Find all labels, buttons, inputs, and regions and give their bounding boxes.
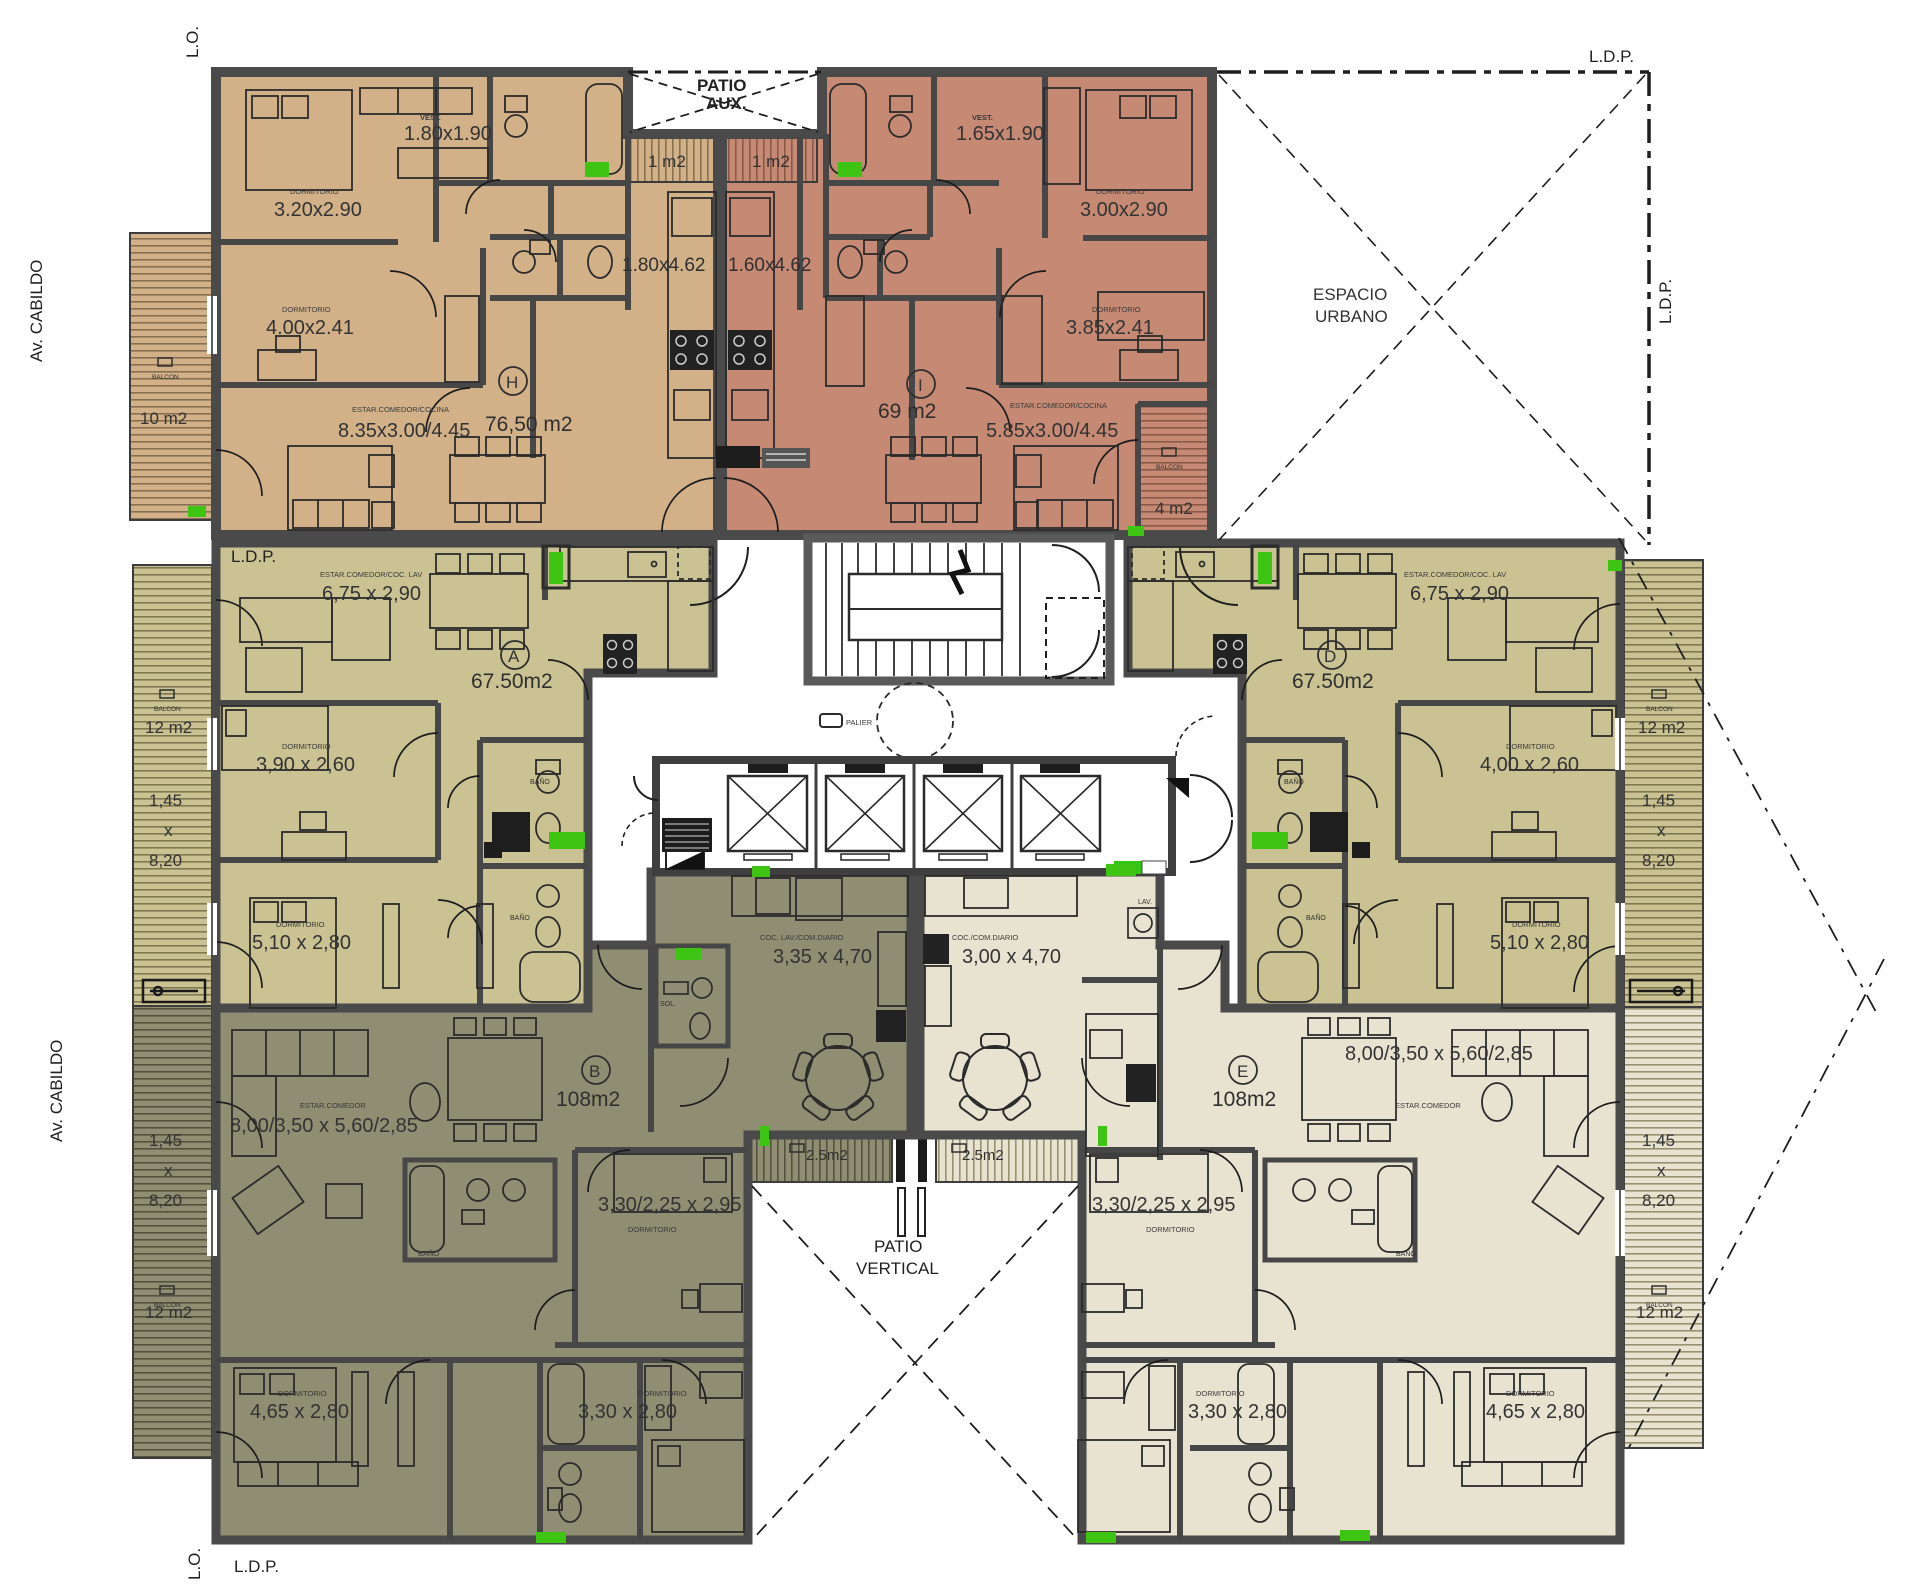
svg-text:VEST.: VEST. <box>972 113 993 122</box>
svg-text:1,45: 1,45 <box>1642 1131 1675 1150</box>
svg-text:67.50m2: 67.50m2 <box>1292 670 1374 693</box>
svg-text:10 m2: 10 m2 <box>140 409 187 428</box>
svg-text:DORMITORIO: DORMITORIO <box>1196 1389 1245 1398</box>
svg-text:5,10 x 2,80: 5,10 x 2,80 <box>252 932 351 954</box>
svg-text:L.O.: L.O. <box>183 26 202 58</box>
svg-text:1.60x4.62: 1.60x4.62 <box>728 255 811 276</box>
svg-text:BAÑO: BAÑO <box>530 777 550 786</box>
svg-text:DORMITORIO: DORMITORIO <box>638 1389 687 1398</box>
svg-text:ESTAR.COMEDOR: ESTAR.COMEDOR <box>300 1101 366 1110</box>
svg-text:3,30/2,25 x 2,95: 3,30/2,25 x 2,95 <box>1092 1194 1235 1216</box>
svg-text:8,00/3,50 x 5,60/2,85: 8,00/3,50 x 5,60/2,85 <box>1345 1043 1533 1065</box>
svg-text:DORMITORIO: DORMITORIO <box>1512 920 1561 929</box>
svg-text:x: x <box>164 821 173 840</box>
svg-text:x: x <box>164 1161 173 1180</box>
svg-text:2.5m2: 2.5m2 <box>806 1147 848 1164</box>
svg-text:DORMITORIO: DORMITORIO <box>1146 1225 1195 1234</box>
svg-text:1,45: 1,45 <box>1642 791 1675 810</box>
svg-text:1.80x1.90: 1.80x1.90 <box>404 123 492 145</box>
svg-text:2.5m2: 2.5m2 <box>962 1147 1004 1164</box>
svg-text:ESTAR.COMEDOR/COC. LAV: ESTAR.COMEDOR/COC. LAV <box>1404 570 1506 579</box>
svg-text:DORMITORIO: DORMITORIO <box>278 1389 327 1398</box>
svg-text:DORMITORIO: DORMITORIO <box>1506 1389 1555 1398</box>
svg-text:D: D <box>1324 647 1336 666</box>
svg-text:AUX.: AUX. <box>706 94 747 113</box>
svg-text:COC./COM.DIARIO: COC./COM.DIARIO <box>952 933 1018 942</box>
svg-text:H: H <box>506 373 518 392</box>
svg-text:4,65 x 2,80: 4,65 x 2,80 <box>250 1401 349 1423</box>
svg-text:1.65x1.90: 1.65x1.90 <box>956 123 1044 145</box>
svg-text:BAÑO: BAÑO <box>1396 1249 1416 1258</box>
svg-text:PATIO: PATIO <box>874 1237 923 1256</box>
svg-text:3.20x2.90: 3.20x2.90 <box>274 199 362 221</box>
svg-text:L.D.P.: L.D.P. <box>234 1557 279 1576</box>
svg-text:1,45: 1,45 <box>149 1131 182 1150</box>
svg-text:VERTICAL: VERTICAL <box>856 1259 939 1278</box>
svg-text:76,50 m2: 76,50 m2 <box>485 413 573 436</box>
svg-text:ESTAR.COMEDOR/COC. LAV: ESTAR.COMEDOR/COC. LAV <box>320 570 422 579</box>
svg-text:6,75 x 2,90: 6,75 x 2,90 <box>322 583 421 605</box>
svg-text:ESPACIO: ESPACIO <box>1313 285 1387 304</box>
svg-text:BAÑO: BAÑO <box>510 913 530 922</box>
svg-text:8,20: 8,20 <box>149 1191 182 1210</box>
svg-text:12 m2: 12 m2 <box>1638 718 1685 737</box>
svg-text:I: I <box>918 376 923 395</box>
svg-text:3,30 x 2,80: 3,30 x 2,80 <box>1188 1401 1287 1423</box>
svg-text:1.80x4.62: 1.80x4.62 <box>622 255 705 276</box>
svg-text:DORMITORIO: DORMITORIO <box>1506 742 1555 751</box>
svg-text:4 m2: 4 m2 <box>1155 499 1193 518</box>
svg-text:BALCON: BALCON <box>1646 706 1673 713</box>
svg-text:DORMITORIO: DORMITORIO <box>282 305 331 314</box>
svg-text:L.D.P.: L.D.P. <box>1656 279 1675 324</box>
svg-text:4.00x2.41: 4.00x2.41 <box>266 317 354 339</box>
svg-text:BAÑO: BAÑO <box>1306 913 1326 922</box>
svg-text:DORMITORIO: DORMITORIO <box>290 187 339 196</box>
svg-text:1,45: 1,45 <box>149 791 182 810</box>
svg-text:x: x <box>1657 1161 1666 1180</box>
svg-text:ESTAR.COMEDOR/COCINA: ESTAR.COMEDOR/COCINA <box>352 405 449 414</box>
svg-text:BAÑO: BAÑO <box>1284 777 1304 786</box>
svg-text:Av. CABILDO: Av. CABILDO <box>47 1040 66 1142</box>
svg-text:12 m2: 12 m2 <box>145 718 192 737</box>
svg-text:A: A <box>508 647 520 666</box>
svg-text:3.85x2.41: 3.85x2.41 <box>1066 317 1154 339</box>
svg-text:108m2: 108m2 <box>1212 1088 1276 1111</box>
svg-text:8,20: 8,20 <box>149 851 182 870</box>
svg-text:URBANO: URBANO <box>1315 307 1388 326</box>
svg-text:8,20: 8,20 <box>1642 851 1675 870</box>
svg-text:BALCON: BALCON <box>152 374 179 381</box>
svg-text:ESTAR.COMEDOR: ESTAR.COMEDOR <box>1395 1101 1461 1110</box>
svg-text:5.85x3.00/4.45: 5.85x3.00/4.45 <box>986 420 1118 442</box>
svg-text:3,30/2,25 x 2,95: 3,30/2,25 x 2,95 <box>598 1194 741 1216</box>
svg-text:COC. LAV./COM.DIARIO: COC. LAV./COM.DIARIO <box>760 933 844 942</box>
svg-text:4,00 x 2,60: 4,00 x 2,60 <box>1480 754 1579 776</box>
svg-text:B: B <box>589 1062 600 1081</box>
svg-text:DORMITORIO: DORMITORIO <box>628 1225 677 1234</box>
svg-text:5,10 x 2,80: 5,10 x 2,80 <box>1490 932 1589 954</box>
svg-text:8,20: 8,20 <box>1642 1191 1675 1210</box>
svg-text:DORMITORIO: DORMITORIO <box>282 742 331 751</box>
svg-text:DORMITORIO: DORMITORIO <box>1096 187 1145 196</box>
svg-text:E: E <box>1237 1062 1248 1081</box>
svg-text:L.O.: L.O. <box>185 1548 204 1580</box>
svg-text:BALCON: BALCON <box>154 706 181 713</box>
svg-text:x: x <box>1657 821 1666 840</box>
svg-text:BAÑO: BAÑO <box>418 1249 439 1258</box>
svg-text:4,65 x 2,80: 4,65 x 2,80 <box>1486 1401 1585 1423</box>
svg-text:67.50m2: 67.50m2 <box>471 670 553 693</box>
svg-text:DORMITORIO: DORMITORIO <box>276 920 325 929</box>
svg-text:SOL.: SOL. <box>660 1001 676 1008</box>
svg-text:L.D.P.: L.D.P. <box>231 547 276 566</box>
svg-text:PALIER: PALIER <box>846 718 873 727</box>
svg-text:Av. CABILDO: Av. CABILDO <box>27 260 46 362</box>
svg-text:8.35x3.00/4.45: 8.35x3.00/4.45 <box>338 420 470 442</box>
svg-text:69 m2: 69 m2 <box>878 400 936 423</box>
svg-text:BALCON: BALCON <box>154 1302 181 1309</box>
svg-text:BALCON: BALCON <box>1646 1302 1673 1309</box>
svg-text:3,35 x 4,70: 3,35 x 4,70 <box>773 946 872 968</box>
svg-text:PATIO: PATIO <box>697 76 746 95</box>
svg-text:1 m2: 1 m2 <box>648 152 686 171</box>
svg-text:6,75 x 2,90: 6,75 x 2,90 <box>1410 583 1509 605</box>
svg-text:1 m2: 1 m2 <box>752 152 790 171</box>
svg-text:3,30 x 2,80: 3,30 x 2,80 <box>578 1401 677 1423</box>
svg-text:BALCON: BALCON <box>1156 464 1183 471</box>
svg-text:ESTAR.COMEDOR/COCINA: ESTAR.COMEDOR/COCINA <box>1010 401 1107 410</box>
svg-text:108m2: 108m2 <box>556 1088 620 1111</box>
svg-text:8,00/3,50 x 5,60/2,85: 8,00/3,50 x 5,60/2,85 <box>230 1115 418 1137</box>
svg-text:3,90 x 2,60: 3,90 x 2,60 <box>256 754 355 776</box>
svg-text:3.00x2.90: 3.00x2.90 <box>1080 199 1168 221</box>
svg-text:DORMITORIO: DORMITORIO <box>1092 305 1141 314</box>
svg-text:3,00 x 4,70: 3,00 x 4,70 <box>962 946 1061 968</box>
svg-text:L.D.P.: L.D.P. <box>1589 47 1634 66</box>
svg-text:LAV.: LAV. <box>1138 899 1152 906</box>
svg-text:VEST.: VEST. <box>420 113 441 122</box>
